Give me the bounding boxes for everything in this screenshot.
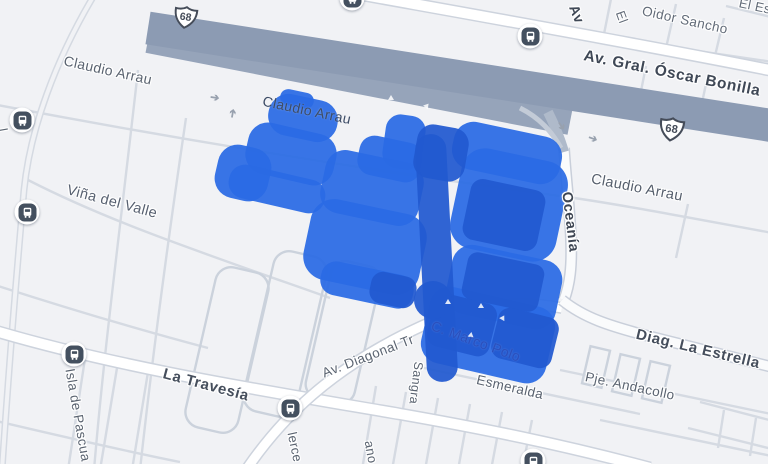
bus-glyph <box>343 0 361 7</box>
bus-glyph <box>281 399 299 417</box>
bus-glyph <box>524 452 542 464</box>
route-68-shield: 68 <box>654 112 689 154</box>
bus-stop-icon[interactable] <box>521 449 546 464</box>
bus-stop-icon[interactable] <box>518 24 543 49</box>
bus-glyph <box>521 27 539 45</box>
bus-stop-icon[interactable] <box>278 396 303 421</box>
icons-layer: 68 68 <box>0 0 768 464</box>
bus-glyph <box>13 111 31 129</box>
bus-stop-icon[interactable] <box>62 342 87 367</box>
shield-number: 68 <box>664 123 678 137</box>
bus-glyph <box>18 203 36 221</box>
shield-number: 68 <box>179 11 192 25</box>
map-canvas[interactable]: Claudio Arrau Claudio Arrau Claudio Arra… <box>0 0 768 464</box>
bus-stop-icon[interactable] <box>15 200 40 225</box>
bus-stop-icon[interactable] <box>340 0 365 11</box>
route-68-shield: 68 <box>169 1 202 41</box>
bus-stop-icon[interactable] <box>10 108 35 133</box>
bus-glyph <box>65 345 83 363</box>
